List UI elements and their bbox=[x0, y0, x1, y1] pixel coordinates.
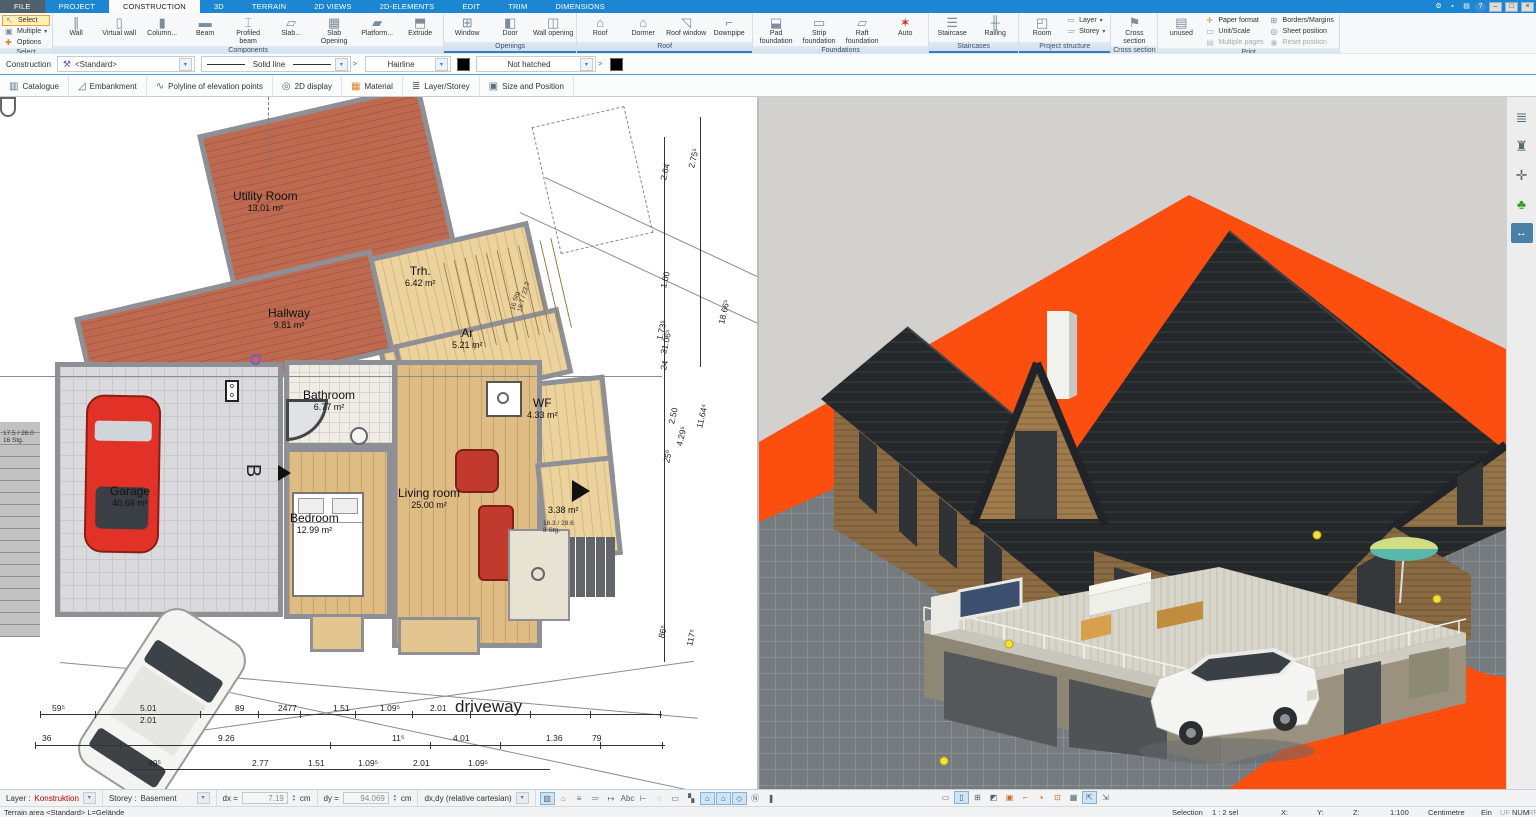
reset-position-icon: ◉ bbox=[1271, 38, 1280, 47]
dimension-text: 11⁵ bbox=[392, 733, 404, 743]
dimension-tick bbox=[355, 711, 356, 718]
button-label: Sheet position bbox=[1283, 28, 1327, 35]
virtual-wall-icon: ▯ bbox=[116, 15, 123, 30]
ribbon-group-roof: ⌂Roof⌂Dormer◹Roof window⌐DownpipeRoof bbox=[577, 13, 753, 53]
raft-foundation-icon: ▱ bbox=[857, 15, 867, 30]
hatch-display-icon[interactable]: ▨ bbox=[540, 792, 555, 805]
tool-label: 2D display bbox=[295, 82, 332, 91]
ribbon-button-downpipe[interactable]: ⌐Downpipe bbox=[708, 14, 750, 42]
button-label: unused bbox=[1170, 30, 1193, 38]
group-label: Openings bbox=[444, 42, 576, 53]
dimension-text: 86⁵ bbox=[656, 624, 669, 639]
ribbon-button-wall[interactable]: ∥Wall bbox=[55, 14, 97, 46]
layer-storey-icon: ≣ bbox=[412, 81, 420, 92]
view3d-toggle-icons: ▭▯⊞◩▣⌐▪⊡▦⇱⇲ bbox=[938, 791, 1113, 804]
dimension-tick bbox=[530, 711, 531, 718]
tab-edit[interactable]: EDIT bbox=[448, 0, 494, 13]
render-quality-icon[interactable]: ◩ bbox=[986, 791, 1001, 804]
storey-icon: ≕ bbox=[1067, 27, 1076, 36]
dimension-text: 1.51 bbox=[333, 703, 350, 713]
restore-button[interactable]: □ bbox=[1505, 2, 1518, 12]
ribbon-group-staircases: ☰Staircase╫RailingStaircases bbox=[929, 13, 1019, 53]
extrude-icon: ⬒ bbox=[414, 15, 426, 30]
dimension-text: 1.51 bbox=[308, 758, 325, 768]
dimension-text: 2.77 bbox=[252, 758, 269, 768]
button-label: Room bbox=[1033, 30, 1052, 38]
tool-label: Polyline of elevation points bbox=[168, 82, 263, 91]
dimension-tick bbox=[500, 742, 501, 749]
tile-windows-icon[interactable]: ⊞ bbox=[970, 791, 985, 804]
ribbon-filler bbox=[1340, 13, 1536, 53]
titlebar-controls: ⚙▪▤?–□× bbox=[1433, 0, 1536, 13]
dimension-text: 1.09⁵ bbox=[380, 703, 400, 713]
sheet-position-icon: ◎ bbox=[1271, 27, 1280, 36]
tab-dimensions[interactable]: DIMENSIONS bbox=[541, 0, 619, 13]
ribbon-button-profiled-beam[interactable]: ⌶Profiled beam bbox=[227, 14, 269, 46]
tool-label: Layer/Storey bbox=[424, 82, 469, 91]
group-label: Project structure bbox=[1019, 42, 1110, 53]
ribbon-button-railing[interactable]: ╫Railing bbox=[974, 14, 1016, 42]
ribbon-button-virtual-wall[interactable]: ▯Virtual wall bbox=[98, 14, 140, 46]
button-label: Multiple bbox=[17, 28, 41, 35]
ribbon-button-multiple-pages[interactable]: ▤Multiple pages bbox=[1203, 37, 1266, 48]
ribbon-button-column[interactable]: ▮Column... bbox=[141, 14, 183, 46]
tab-terrain[interactable]: TERRAIN bbox=[238, 0, 300, 13]
chevron-down-icon[interactable]: ▾ bbox=[335, 58, 348, 71]
construction-label: Construction bbox=[6, 60, 51, 69]
dimension-style-icon[interactable]: ↦ bbox=[604, 792, 619, 805]
status-message: Terrain area <Standard> L=Gelände bbox=[4, 808, 124, 817]
dimension-line bbox=[35, 745, 665, 746]
x-coordinate: X: bbox=[1281, 808, 1288, 817]
dx-input[interactable]: 7.19 bbox=[242, 792, 288, 804]
ribbon-button-pad-foundation[interactable]: ⬓Pad foundation bbox=[755, 14, 797, 46]
dimension-text: 2.01 bbox=[140, 715, 157, 725]
dimension-chain-icon[interactable]: ⊢ bbox=[636, 792, 651, 805]
wall-opening-icon: ◫ bbox=[547, 15, 559, 30]
coord-mode-value: dx,dy (relative cartesian) bbox=[424, 794, 511, 803]
ribbon-button-beam[interactable]: ▬Beam bbox=[184, 14, 226, 46]
button-label: Storey bbox=[1079, 28, 1099, 35]
ribbon-button-raft-foundation[interactable]: ▱Raft foundation bbox=[841, 14, 883, 46]
ribbon-button-dormer[interactable]: ⌂Dormer bbox=[622, 14, 664, 42]
z-coordinate: Z: bbox=[1353, 808, 1360, 817]
chevron-down-icon[interactable]: ▾ bbox=[435, 58, 448, 71]
storey-selector[interactable]: Storey : Basement ▾ bbox=[103, 790, 217, 807]
chevron-down-icon[interactable]: ▾ bbox=[516, 792, 529, 804]
tool-label: Size and Position bbox=[502, 82, 564, 91]
chevron-down-icon[interactable]: ▾ bbox=[580, 58, 593, 71]
ribbon-button-layer[interactable]: ≔Layer▾ bbox=[1064, 15, 1108, 26]
north-arrow-icon[interactable]: Ⓝ bbox=[748, 792, 763, 805]
dx-unit: cm bbox=[300, 794, 311, 803]
bed bbox=[292, 492, 364, 597]
selection-label: Selection bbox=[1172, 808, 1203, 817]
beam-icon: ▬ bbox=[199, 15, 212, 30]
section-width-icon[interactable]: ↔ bbox=[1511, 223, 1533, 243]
uf-flag: UF bbox=[1500, 808, 1510, 817]
dy-label: dy = bbox=[324, 794, 339, 803]
roof-3d-icon[interactable]: ⌂ bbox=[716, 792, 731, 805]
dimension-text: 40⁵ bbox=[148, 758, 161, 768]
construction-label-cell: Construction bbox=[6, 56, 51, 72]
borders-margins-icon: ⊞ bbox=[1271, 16, 1280, 25]
settings-gear-icon[interactable]: ⚙ bbox=[1433, 2, 1444, 12]
grid-icon[interactable]: ▦ bbox=[1066, 791, 1081, 804]
dimension-text: 2.01 bbox=[430, 703, 447, 713]
construction-style-icon: ⚒ bbox=[63, 59, 71, 70]
help-icon[interactable]: ? bbox=[1475, 2, 1486, 12]
ribbon-button-platform[interactable]: ▰Platform... bbox=[356, 14, 398, 46]
dashed-lines-icon[interactable]: ≕ bbox=[588, 792, 603, 805]
strip-foundation-icon: ▭ bbox=[813, 15, 825, 30]
ribbon-button-roof[interactable]: ⌂Roof bbox=[579, 14, 621, 42]
button-label: Reset position bbox=[1283, 39, 1327, 46]
ribbon-button-multiple[interactable]: ▣Multiple▾ bbox=[2, 26, 50, 37]
window-icon: ⊞ bbox=[462, 15, 473, 30]
roof-window-icon: ◹ bbox=[681, 15, 691, 30]
selection-handle[interactable] bbox=[250, 354, 261, 365]
ribbon-button-unit-scale[interactable]: ▭Unit/Scale bbox=[1203, 26, 1266, 37]
button-label: Slab... bbox=[281, 30, 301, 38]
stove bbox=[486, 381, 522, 417]
button-label: Roof bbox=[593, 30, 608, 38]
ribbon-button-room[interactable]: ◰Room bbox=[1021, 14, 1063, 42]
button-label: Wall opening bbox=[533, 30, 573, 38]
unit-scale-icon: ▭ bbox=[1206, 27, 1215, 36]
material-icon: ▦ bbox=[351, 81, 360, 92]
status-bar: Terrain area <Standard> L=Gelände Select… bbox=[0, 806, 1536, 817]
unit-indicator[interactable]: Centimetre bbox=[1428, 808, 1465, 817]
ribbon-button-auto[interactable]: ✶Auto bbox=[884, 14, 926, 46]
button-label: Column... bbox=[147, 30, 177, 38]
layer-icon: ≔ bbox=[1067, 16, 1076, 25]
dimension-tick bbox=[35, 742, 36, 749]
line-type-dropdown[interactable]: Solid line ▾ bbox=[201, 56, 351, 72]
tab-3d[interactable]: 3D bbox=[200, 0, 238, 13]
button-label: Slab Opening bbox=[313, 30, 355, 46]
tool-button-2d-display[interactable]: ◎2D display bbox=[273, 76, 342, 97]
tool-button-polyline-of-elevation-points[interactable]: ∿Polyline of elevation points bbox=[147, 76, 273, 97]
button-label: Strip foundation bbox=[798, 30, 840, 46]
num-flag: NUM bbox=[1512, 808, 1529, 817]
ribbon-button-storey[interactable]: ≕Storey▾ bbox=[1064, 26, 1108, 37]
dimension-tick bbox=[330, 742, 331, 749]
hatch-dropdown[interactable]: Not hatched ▾ bbox=[476, 56, 596, 72]
polyline-icon: ∿ bbox=[156, 81, 164, 92]
ribbon-group-openings: ⊞Window◧Door◫Wall openingOpenings bbox=[444, 13, 577, 53]
properties-toolbar: Construction ⚒ <Standard> ▾ Solid line ▾… bbox=[0, 53, 1536, 75]
furniture-icon[interactable]: ♜ bbox=[1511, 136, 1533, 156]
paper-format-icon: ✛ bbox=[1206, 16, 1215, 25]
dy-spinner[interactable]: ▲▼ bbox=[393, 794, 397, 802]
group-label: Staircases bbox=[929, 42, 1018, 53]
roof-plan-icon[interactable]: ⌂ bbox=[700, 792, 715, 805]
button-label: Unit/Scale bbox=[1218, 28, 1250, 35]
view-3d-scene bbox=[759, 97, 1506, 789]
text-style-icon[interactable]: Abc bbox=[620, 792, 635, 805]
tab-project[interactable]: PROJECT bbox=[45, 0, 109, 13]
dx-label: dx = bbox=[223, 794, 238, 803]
dimension-line-vertical bbox=[664, 137, 665, 662]
ribbon-button-strip-foundation[interactable]: ▭Strip foundation bbox=[798, 14, 840, 46]
selection-count: 1 : 2 sel bbox=[1212, 808, 1238, 817]
ribbon-button-paper-format[interactable]: ✛Paper format bbox=[1203, 15, 1266, 26]
tool-button-catalogue[interactable]: ▥Catalogue bbox=[0, 76, 69, 97]
rf-flag: RF bbox=[1528, 808, 1536, 817]
button-label: Staircase bbox=[938, 30, 967, 38]
stair-note: 17.5 / 28.0 16 Stg. bbox=[3, 430, 34, 444]
neighbor-outline bbox=[532, 106, 654, 254]
terrace-step bbox=[398, 617, 480, 655]
dimension-text: 36 bbox=[42, 733, 51, 743]
tool-label: Catalogue bbox=[22, 82, 58, 91]
dy-field-cell: dy = 94.069 ▲▼ cm bbox=[318, 790, 419, 807]
ribbon-group-cross-section: ⚑Cross sectionCross section bbox=[1111, 13, 1158, 53]
ribbon-button-extrude[interactable]: ⬒Extrude bbox=[399, 14, 441, 46]
coord-mode-selector[interactable]: dx,dy (relative cartesian) ▾ bbox=[418, 790, 535, 807]
dimension-text: 2.01 bbox=[413, 758, 430, 768]
car-white-topview bbox=[70, 600, 255, 789]
expand-arrow[interactable]: > bbox=[353, 61, 357, 68]
line-sample-right bbox=[293, 64, 331, 65]
stair-note: 16.3 / 28.6 8 Stg. bbox=[543, 520, 574, 534]
print-icon[interactable]: ▤ bbox=[1461, 2, 1472, 12]
multiple-pages-icon: ▤ bbox=[1206, 38, 1215, 47]
plan-2d-viewport[interactable]: ooUtility Room13.01 m²Trh.6.42 m²Hallway… bbox=[0, 97, 757, 789]
coffee-table bbox=[508, 529, 570, 621]
selection-ellipse-icon[interactable]: ◌ bbox=[652, 792, 667, 805]
exterior-stair bbox=[0, 422, 40, 637]
printer-icon: ▤ bbox=[1175, 15, 1187, 30]
dimension-text: 59⁵ bbox=[52, 703, 65, 713]
ribbon-button-select[interactable]: ↖Select bbox=[2, 15, 50, 26]
dimension-tick bbox=[662, 742, 663, 749]
plants-icon[interactable]: ♣ bbox=[1511, 194, 1533, 214]
ribbon-group-foundations: ⬓Pad foundation▭Strip foundation▱Raft fo… bbox=[753, 13, 929, 53]
corner-fill-icon[interactable]: ▚ bbox=[684, 792, 699, 805]
slab-icon: ▱ bbox=[286, 15, 296, 30]
section-marker-b: B bbox=[241, 464, 264, 477]
button-label: Dormer bbox=[631, 30, 654, 38]
dimension-text: 5.01 bbox=[140, 703, 157, 713]
dropdown-arrow-icon: ▾ bbox=[1100, 17, 1103, 24]
layer-value: Konstruktion bbox=[34, 794, 78, 803]
multiple-select-icon: ▣ bbox=[5, 27, 14, 36]
car-red-topview bbox=[84, 394, 162, 553]
button-label: Raft foundation bbox=[841, 30, 883, 46]
style-dropdown[interactable]: ⚒ <Standard> ▾ bbox=[57, 56, 195, 72]
group-label: Roof bbox=[577, 42, 752, 53]
measure-icon[interactable]: ▭ bbox=[938, 791, 953, 804]
tab-2d-views[interactable]: 2D VIEWS bbox=[300, 0, 365, 13]
y-coordinate: Y: bbox=[1317, 808, 1324, 817]
ribbon-button-options[interactable]: ✚Options bbox=[2, 37, 50, 48]
dimension-text: 25⁰ bbox=[661, 449, 675, 464]
tab-2d-elements[interactable]: 2D-ELEMENTS bbox=[366, 0, 449, 13]
roof-color-icon[interactable]: ⌂ bbox=[556, 792, 571, 805]
wall-icon: ∥ bbox=[73, 15, 80, 30]
dimension-text: 9.26 bbox=[218, 733, 235, 743]
dimension-tick bbox=[300, 711, 301, 718]
dy-unit: cm bbox=[401, 794, 412, 803]
ribbon-button-sheet-position[interactable]: ◎Sheet position bbox=[1268, 26, 1337, 37]
view-3d-viewport[interactable] bbox=[759, 97, 1506, 789]
ribbon-button-slab[interactable]: ▱Slab... bbox=[270, 14, 312, 46]
close-button[interactable]: × bbox=[1521, 2, 1534, 12]
line-type-value: Solid line bbox=[249, 60, 289, 69]
tool-label: Material bbox=[364, 82, 392, 91]
ribbon-button-reset-position[interactable]: ◉Reset position bbox=[1268, 37, 1337, 48]
embankment-icon: ◿ bbox=[78, 81, 86, 92]
2d-display-icon: ◎ bbox=[282, 81, 291, 92]
pointer-flag-icon[interactable]: ❚ bbox=[764, 792, 779, 805]
section-arrow bbox=[572, 480, 590, 502]
line-color-swatch[interactable] bbox=[457, 58, 470, 71]
axis-dashed-line bbox=[268, 97, 269, 167]
ribbon-group-project-structure: ◰Room≔Layer▾≕Storey▾Project structure bbox=[1019, 13, 1111, 53]
dimension-line bbox=[40, 714, 662, 715]
pad-foundation-icon: ⬓ bbox=[770, 15, 782, 30]
staircase-icon: ☰ bbox=[946, 15, 958, 30]
dimension-tick bbox=[660, 711, 661, 718]
dimension-text: 4.01 bbox=[453, 733, 470, 743]
ribbon-button-wall-opening[interactable]: ◫Wall opening bbox=[532, 14, 574, 42]
line-sample-left bbox=[207, 64, 245, 65]
tool-button-size-and-position[interactable]: ▣Size and Position bbox=[480, 76, 574, 97]
ribbon-group-components: ∥Wall▯Virtual wall▮Column...▬Beam⌶Profil… bbox=[53, 13, 444, 53]
dimension-text: 2477 bbox=[278, 703, 297, 713]
ribbon-button-door[interactable]: ◧Door bbox=[489, 14, 531, 42]
light-icon[interactable]: ▪ bbox=[1034, 791, 1049, 804]
main-area: ooUtility Room13.01 m²Trh.6.42 m²Hallway… bbox=[0, 97, 1536, 789]
section-view-icon[interactable]: ⌐ bbox=[1018, 791, 1033, 804]
chevron-down-icon[interactable]: ▾ bbox=[179, 58, 192, 71]
viewport-icon[interactable]: ▯ bbox=[954, 791, 969, 804]
dimension-tick bbox=[600, 742, 601, 749]
button-label: Door bbox=[503, 30, 518, 38]
profiled-beam-icon: ⌶ bbox=[244, 15, 252, 30]
button-label: Wall bbox=[69, 30, 82, 38]
tool-button-layer-storey[interactable]: ≣Layer/Storey bbox=[403, 76, 480, 97]
button-label: Auto bbox=[898, 30, 912, 38]
dimension-tick bbox=[120, 742, 121, 749]
column-icon: ▮ bbox=[159, 15, 166, 30]
dimension-text: 1.36 bbox=[546, 733, 563, 743]
layer-label: Layer : bbox=[6, 794, 30, 803]
chevron-down-icon[interactable]: ▾ bbox=[83, 792, 96, 804]
viewport-frame-icon[interactable]: ▭ bbox=[668, 792, 683, 805]
button-label: Virtual wall bbox=[102, 30, 136, 38]
dimension-text: 4.29⁵ bbox=[674, 425, 688, 447]
expand-arrow[interactable]: > bbox=[598, 61, 602, 68]
line-width-value: Hairline bbox=[371, 60, 431, 69]
dy-input[interactable]: 94.069 bbox=[343, 792, 389, 804]
ribbon-button-slab-opening[interactable]: ▦Slab Opening bbox=[313, 14, 355, 46]
auto-icon: ✶ bbox=[900, 15, 911, 30]
focus-icon[interactable]: ⊡ bbox=[1050, 791, 1065, 804]
image-export-icon[interactable]: ▣ bbox=[1002, 791, 1017, 804]
hatch-color-swatch[interactable] bbox=[610, 58, 623, 71]
ribbon-button-staircase[interactable]: ☰Staircase bbox=[931, 14, 973, 42]
button-label: Layer bbox=[1079, 17, 1097, 24]
ribbon-tab-bar: FILEPROJECTCONSTRUCTION3DTERRAIN2D VIEWS… bbox=[0, 0, 1536, 13]
tool-button-embankment[interactable]: ◿Embankment bbox=[69, 76, 147, 97]
button-label: Extrude bbox=[408, 30, 432, 38]
button-label: Platform... bbox=[361, 30, 393, 38]
section-arrow bbox=[278, 465, 291, 481]
swap-views-icon[interactable]: ⇲ bbox=[1098, 791, 1113, 804]
tab-trim[interactable]: TRIM bbox=[494, 0, 541, 13]
ribbon-button-window[interactable]: ⊞Window bbox=[446, 14, 488, 42]
style-value: <Standard> bbox=[75, 60, 175, 69]
minimize-button[interactable]: – bbox=[1489, 2, 1502, 12]
tab-file[interactable]: FILE bbox=[0, 0, 45, 13]
button-label: Options bbox=[17, 39, 41, 46]
move-mode-icon[interactable]: ✛ bbox=[1511, 165, 1533, 185]
button-label: Multiple pages bbox=[1218, 39, 1263, 46]
ribbon-button-cross-section[interactable]: ⚑Cross section bbox=[1113, 14, 1155, 46]
layer-selector[interactable]: Layer : Konstruktion ▾ bbox=[0, 790, 103, 807]
slab-opening-icon: ▦ bbox=[328, 15, 340, 30]
dimension-line bbox=[130, 769, 550, 770]
chevron-down-icon[interactable]: ▾ bbox=[197, 792, 210, 804]
ribbon-button-unused[interactable]: ▤unused bbox=[1160, 14, 1202, 48]
tools-toolbar: ▥Catalogue◿Embankment∿Polyline of elevat… bbox=[0, 76, 1536, 97]
button-label: Railing bbox=[984, 30, 1005, 38]
ribbon-button-borders-margins[interactable]: ⊞Borders/Margins bbox=[1268, 15, 1337, 26]
ein-toggle[interactable]: Ein bbox=[1481, 808, 1492, 817]
downpipe-icon: ⌐ bbox=[725, 15, 733, 30]
button-label: Beam bbox=[196, 30, 214, 38]
dimension-tick bbox=[95, 711, 96, 718]
storey-label: Storey : bbox=[109, 794, 137, 803]
button-label: Roof window bbox=[666, 30, 706, 38]
tool-button-material[interactable]: ▦Material bbox=[342, 76, 403, 97]
dimension-tick bbox=[200, 711, 201, 718]
dimension-line-vertical bbox=[700, 117, 701, 367]
sink bbox=[350, 427, 368, 445]
dropdown-arrow-icon: ▾ bbox=[1102, 28, 1105, 35]
dropdown-arrow-icon: ▾ bbox=[44, 28, 47, 35]
tab-construction[interactable]: CONSTRUCTION bbox=[109, 0, 200, 13]
line-width-dropdown[interactable]: Hairline ▾ bbox=[365, 56, 451, 72]
dx-spinner[interactable]: ▲▼ bbox=[292, 794, 296, 802]
roof-icon: ⌂ bbox=[596, 15, 604, 30]
ribbon-button-roof-window[interactable]: ◹Roof window bbox=[665, 14, 707, 42]
dimension-text: 1.00 bbox=[658, 271, 671, 289]
link-views-icon[interactable]: ⇱ bbox=[1082, 791, 1097, 804]
display-toggle-icons: ▨⌂≡≕↦Abc⊢◌▭▚⌂⌂◇Ⓝ❚ bbox=[536, 792, 779, 805]
dimension-tick bbox=[40, 711, 41, 718]
tool-label: Embankment bbox=[90, 82, 137, 91]
right-tool-strip: ≣♜✛♣↔ bbox=[1506, 97, 1536, 789]
lock-icon[interactable]: ▪ bbox=[1447, 2, 1458, 12]
layers-icon[interactable]: ≣ bbox=[1511, 107, 1533, 127]
dimension-tick bbox=[412, 711, 413, 718]
ribbon-group-select: ↖Select▣Multiple▾✚OptionsSelect bbox=[0, 13, 53, 53]
railing-icon: ╫ bbox=[991, 15, 1000, 30]
slab-view-icon[interactable]: ◇ bbox=[732, 792, 747, 805]
button-label: Profiled beam bbox=[227, 30, 269, 46]
platform-icon: ▰ bbox=[372, 15, 382, 30]
line-weight-icon[interactable]: ≡ bbox=[572, 792, 587, 805]
scale-indicator[interactable]: 1:100 bbox=[1390, 808, 1409, 817]
select-cursor-icon: ↖ bbox=[6, 16, 15, 25]
dimension-text: 11.64⁴ bbox=[694, 403, 709, 429]
hatch-value: Not hatched bbox=[482, 60, 576, 69]
button-label: Pad foundation bbox=[755, 30, 797, 46]
